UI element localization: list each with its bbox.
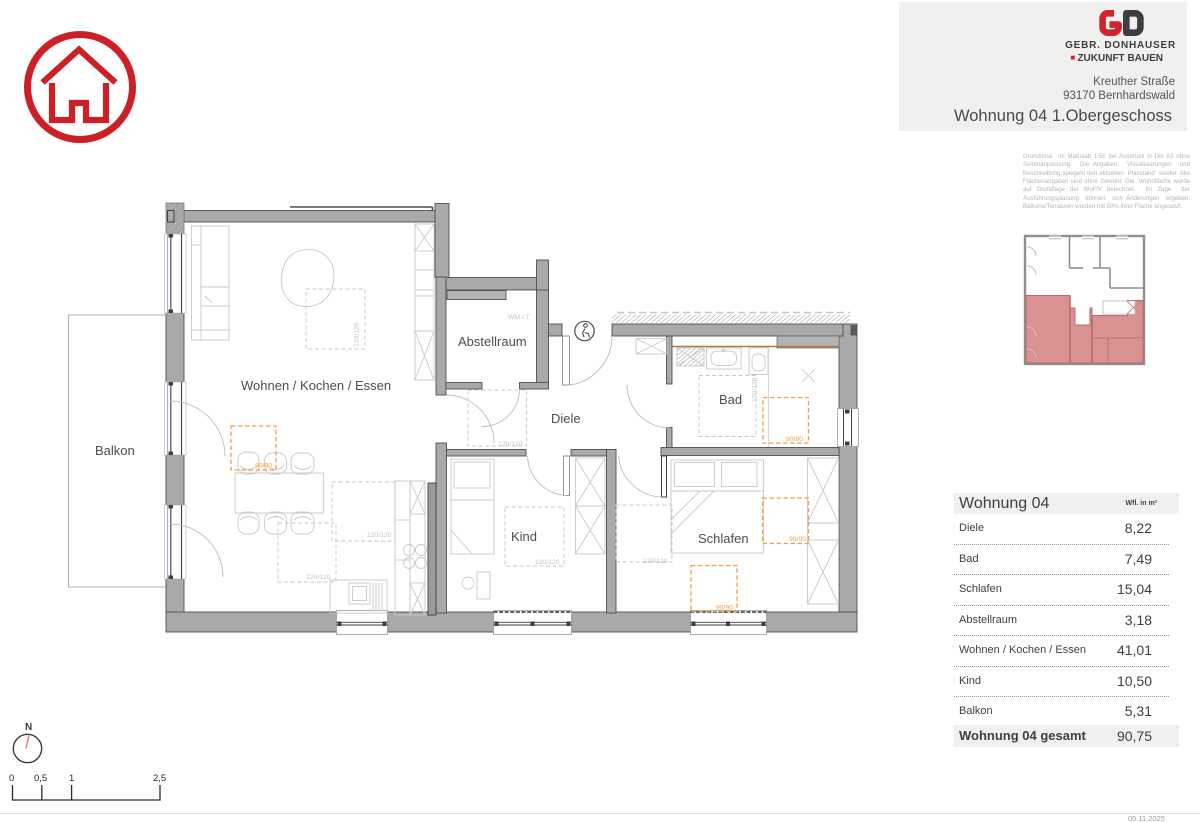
svg-text:90/90: 90/90 <box>255 463 272 470</box>
svg-text:90/90: 90/90 <box>789 536 806 543</box>
svg-text:90/90: 90/90 <box>716 605 733 612</box>
svg-text:Abstellraum: Abstellraum <box>458 334 527 349</box>
svg-text:120/120: 120/120 <box>752 377 759 402</box>
svg-text:120/120: 120/120 <box>498 441 523 448</box>
svg-text:120/120: 120/120 <box>643 558 668 565</box>
svg-text:90/90: 90/90 <box>786 436 803 443</box>
svg-text:Balkon: Balkon <box>95 443 135 458</box>
svg-text:WM / T: WM / T <box>508 314 530 321</box>
svg-text:120/120: 120/120 <box>367 532 392 539</box>
svg-text:120/120: 120/120 <box>306 574 331 581</box>
svg-text:Wohnen / Kochen / Essen: Wohnen / Kochen / Essen <box>241 378 391 393</box>
svg-text:Bad: Bad <box>719 392 742 407</box>
svg-text:Kind: Kind <box>511 529 537 544</box>
svg-text:120/120: 120/120 <box>535 559 560 566</box>
svg-text:Schlafen: Schlafen <box>698 531 749 546</box>
svg-text:120/120: 120/120 <box>354 322 361 347</box>
svg-text:Diele: Diele <box>551 411 581 426</box>
